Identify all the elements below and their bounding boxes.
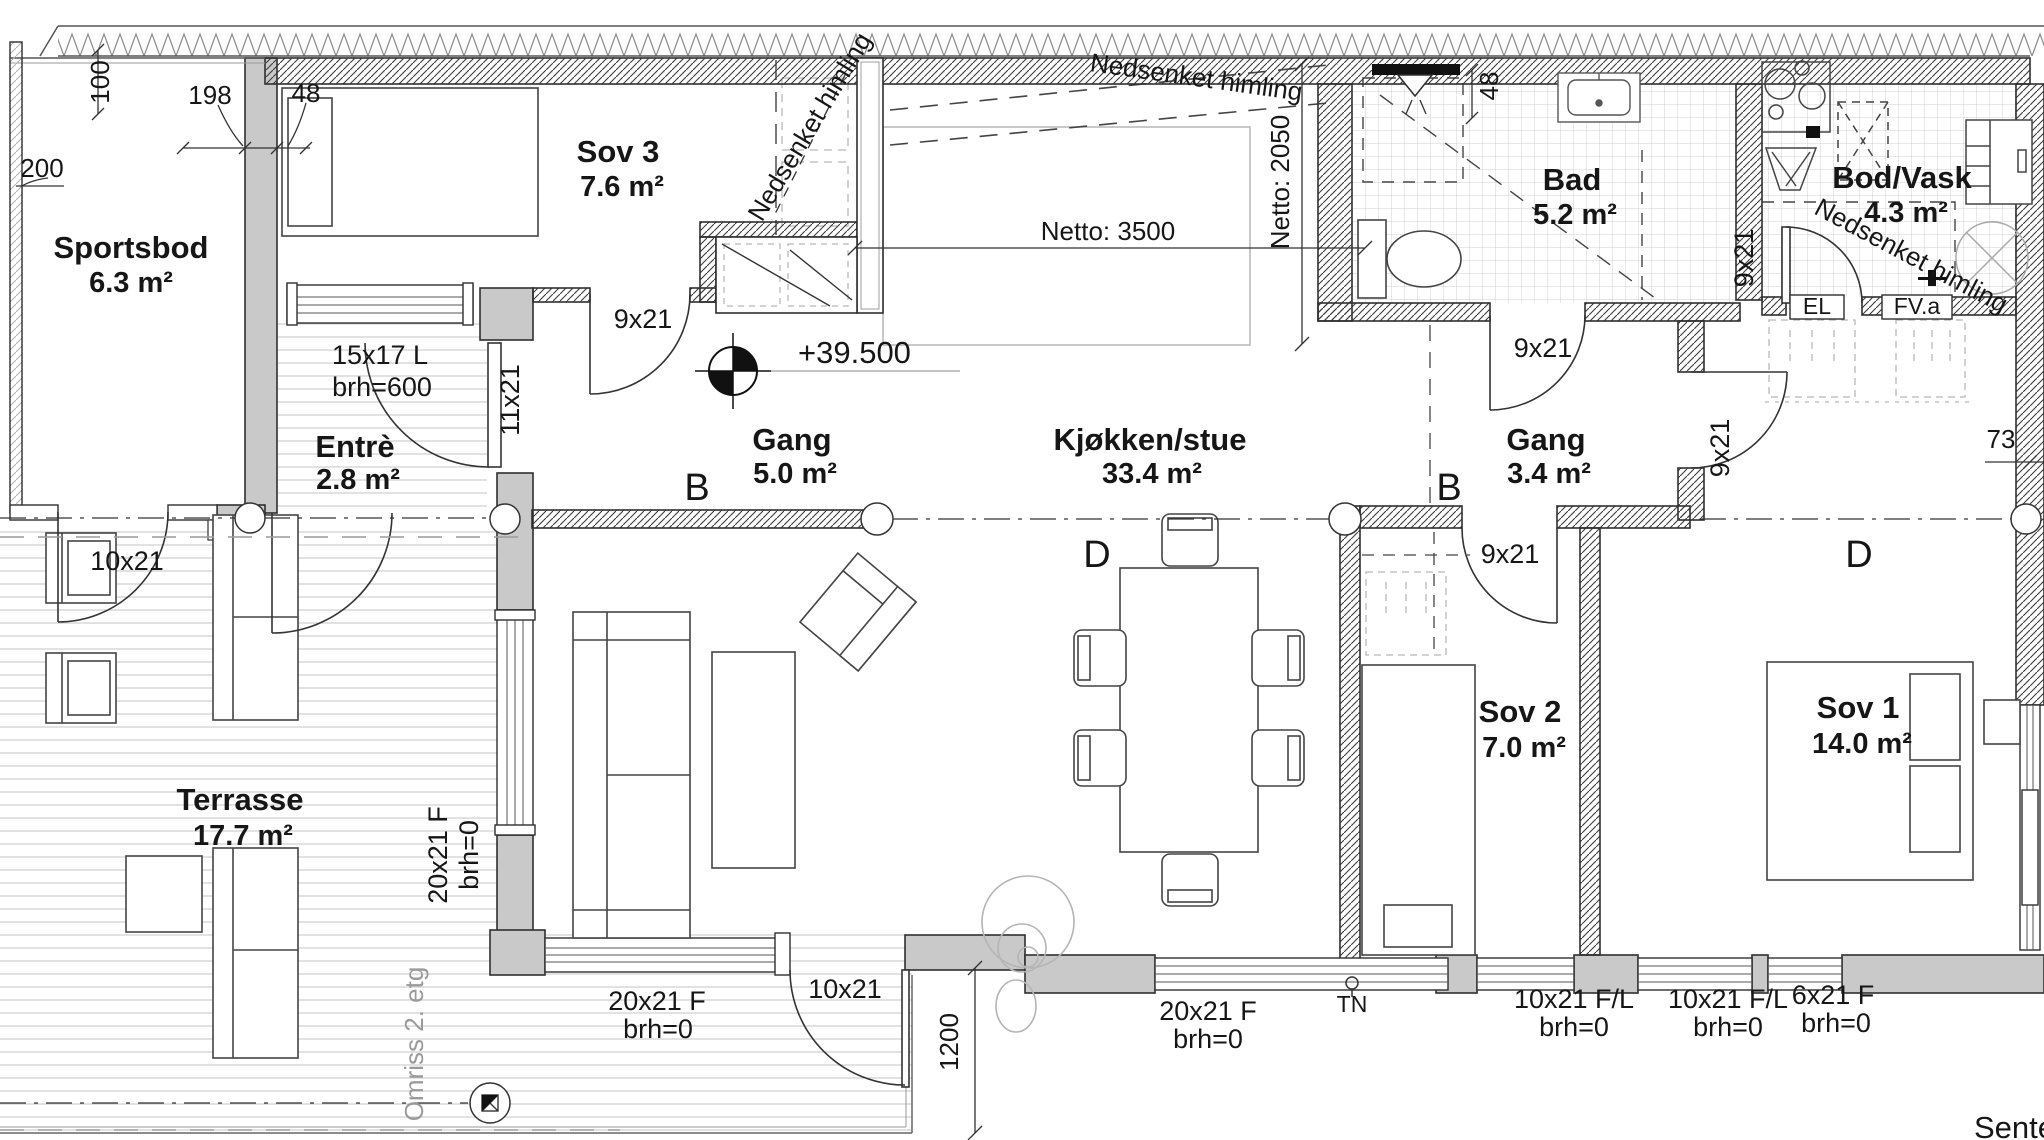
terrasse-bench xyxy=(213,515,298,720)
floor-plan-page: Sportsbod 6.3 m² Sov 3 7.6 m² Entrè 2.8 … xyxy=(0,0,2044,1140)
dim-200: 200 xyxy=(20,153,63,183)
label-door-bodvask: 9x21 xyxy=(1729,229,1759,288)
label-gang2-area: 3.4 m² xyxy=(1507,458,1591,490)
bed-sov3 xyxy=(282,88,538,236)
window-entre xyxy=(287,283,473,325)
label-sov3: Sov 3 xyxy=(577,134,660,169)
note-el: EL xyxy=(1803,293,1831,319)
floor-plan-canvas: Sportsbod 6.3 m² Sov 3 7.6 m² Entrè 2.8 … xyxy=(0,0,2044,1140)
label-window-sov2-sill: brh=0 xyxy=(1539,1012,1609,1042)
label-bod-vask: Bod/Vask xyxy=(1832,160,1972,195)
section-b-left: B xyxy=(684,467,709,509)
dim-netto-3500: Netto: 3500 xyxy=(1041,216,1175,246)
label-kjokken-stue: Kjøkken/stue xyxy=(1054,422,1247,457)
label-window-sov1-b: 6x21 F xyxy=(1792,980,1875,1010)
sofa xyxy=(573,612,690,938)
note-tn: TN xyxy=(1337,991,1368,1017)
window-east xyxy=(2020,705,2040,950)
dim-netto-2050: Netto: 2050 xyxy=(1265,115,1295,249)
dim-100: 100 xyxy=(85,60,115,103)
label-door-entre-inner: 11x21 xyxy=(495,364,525,436)
label-bad: Bad xyxy=(1543,162,1602,197)
label-entre: Entrè xyxy=(315,429,394,464)
label-sov2: Sov 2 xyxy=(1479,694,1562,729)
note-omriss: Omriss 2. etg xyxy=(399,967,429,1122)
label-window-sov2: 10x21 F/L xyxy=(1514,984,1634,1014)
label-bad-area: 5.2 m² xyxy=(1533,199,1617,231)
label-gang-area: 5.0 m² xyxy=(753,458,837,490)
note-fva: FV.a xyxy=(1894,293,1941,319)
label-window-sov1-a: 10x21 F/L xyxy=(1668,984,1788,1014)
dining-chair xyxy=(1252,630,1304,686)
dining-chair xyxy=(1074,630,1126,686)
label-sov2-area: 7.0 m² xyxy=(1482,732,1566,764)
label-window-vest: 20x21 F xyxy=(423,806,453,904)
label-door-sov1: 9x21 xyxy=(1705,419,1735,478)
label-window-stue-sor2-sill: brh=0 xyxy=(1173,1024,1243,1054)
window-stue-sor xyxy=(545,933,790,975)
dim-1200 xyxy=(968,961,982,1140)
label-window-vest-sill: brh=0 xyxy=(454,820,484,890)
window-vest xyxy=(495,610,535,835)
dim-48-bad: 48 xyxy=(1474,72,1504,101)
label-terrasse: Terrasse xyxy=(177,782,304,817)
terrasse-bench xyxy=(213,848,298,1058)
label-sov1: Sov 1 xyxy=(1817,690,1900,725)
corner-text: Senter xyxy=(1974,1110,2044,1140)
label-window-entre-sill: brh=600 xyxy=(332,372,432,402)
level-value: +39.500 xyxy=(798,335,911,370)
bed-sov2 xyxy=(1362,665,1475,955)
label-sov3-area: 7.6 m² xyxy=(580,171,664,203)
coffee-table xyxy=(712,652,795,868)
terrasse-table xyxy=(126,856,202,932)
label-window-stue-sor2: 20x21 F xyxy=(1159,996,1257,1026)
section-d-right: D xyxy=(1845,534,1872,576)
ceiling-lamp-icon xyxy=(982,876,1074,1032)
section-d-left: D xyxy=(1083,534,1110,576)
label-door-sportsbod: 10x21 xyxy=(90,546,164,576)
dim-198: 198 xyxy=(188,80,231,110)
label-gang: Gang xyxy=(752,422,831,457)
shaft-walls xyxy=(857,58,883,313)
label-gang2: Gang xyxy=(1506,422,1585,457)
label-window-sov1-a-sill: brh=0 xyxy=(1693,1012,1763,1042)
tall-cabinet xyxy=(1966,120,2032,204)
shower-head-icon xyxy=(1372,64,1460,75)
label-entre-area: 2.8 m² xyxy=(316,464,400,496)
label-window-sov1-b-sill: brh=0 xyxy=(1801,1008,1871,1038)
dining-chair xyxy=(1162,854,1218,906)
label-window-stue-sor: 20x21 F xyxy=(608,986,706,1016)
label-door-bad: 9x21 xyxy=(1514,333,1573,363)
armchair xyxy=(800,553,916,671)
grid-point-icon xyxy=(470,1083,510,1123)
label-window-entre: 15x17 L xyxy=(332,340,428,370)
section-b-right: B xyxy=(1436,467,1461,509)
dim-73: 73 xyxy=(1987,424,2016,454)
label-kjokken-stue-area: 33.4 m² xyxy=(1102,458,1202,490)
label-door-sov2: 9x21 xyxy=(1481,539,1540,569)
dim-48-top: 48 xyxy=(292,78,321,108)
hall-closet xyxy=(716,237,857,313)
terrasse-chair xyxy=(46,653,116,723)
dining-chair xyxy=(1252,730,1304,786)
dining-chair xyxy=(1074,730,1126,786)
label-sov1-area: 14.0 m² xyxy=(1812,728,1912,760)
window-stue-sor2 xyxy=(1155,958,1448,990)
label-sportsbod-area: 6.3 m² xyxy=(89,267,173,299)
washbasin-icon xyxy=(1558,73,1640,122)
label-sportsbod: Sportsbod xyxy=(54,230,209,265)
label-door-sov3: 9x21 xyxy=(614,304,673,334)
label-terrasse-area: 17.7 m² xyxy=(193,820,293,852)
dim-1200: 1200 xyxy=(934,1013,964,1071)
label-window-stue-sor-sill: brh=0 xyxy=(623,1014,693,1044)
dining-chair xyxy=(1162,514,1218,566)
label-door-terrasse: 10x21 xyxy=(808,974,882,1004)
